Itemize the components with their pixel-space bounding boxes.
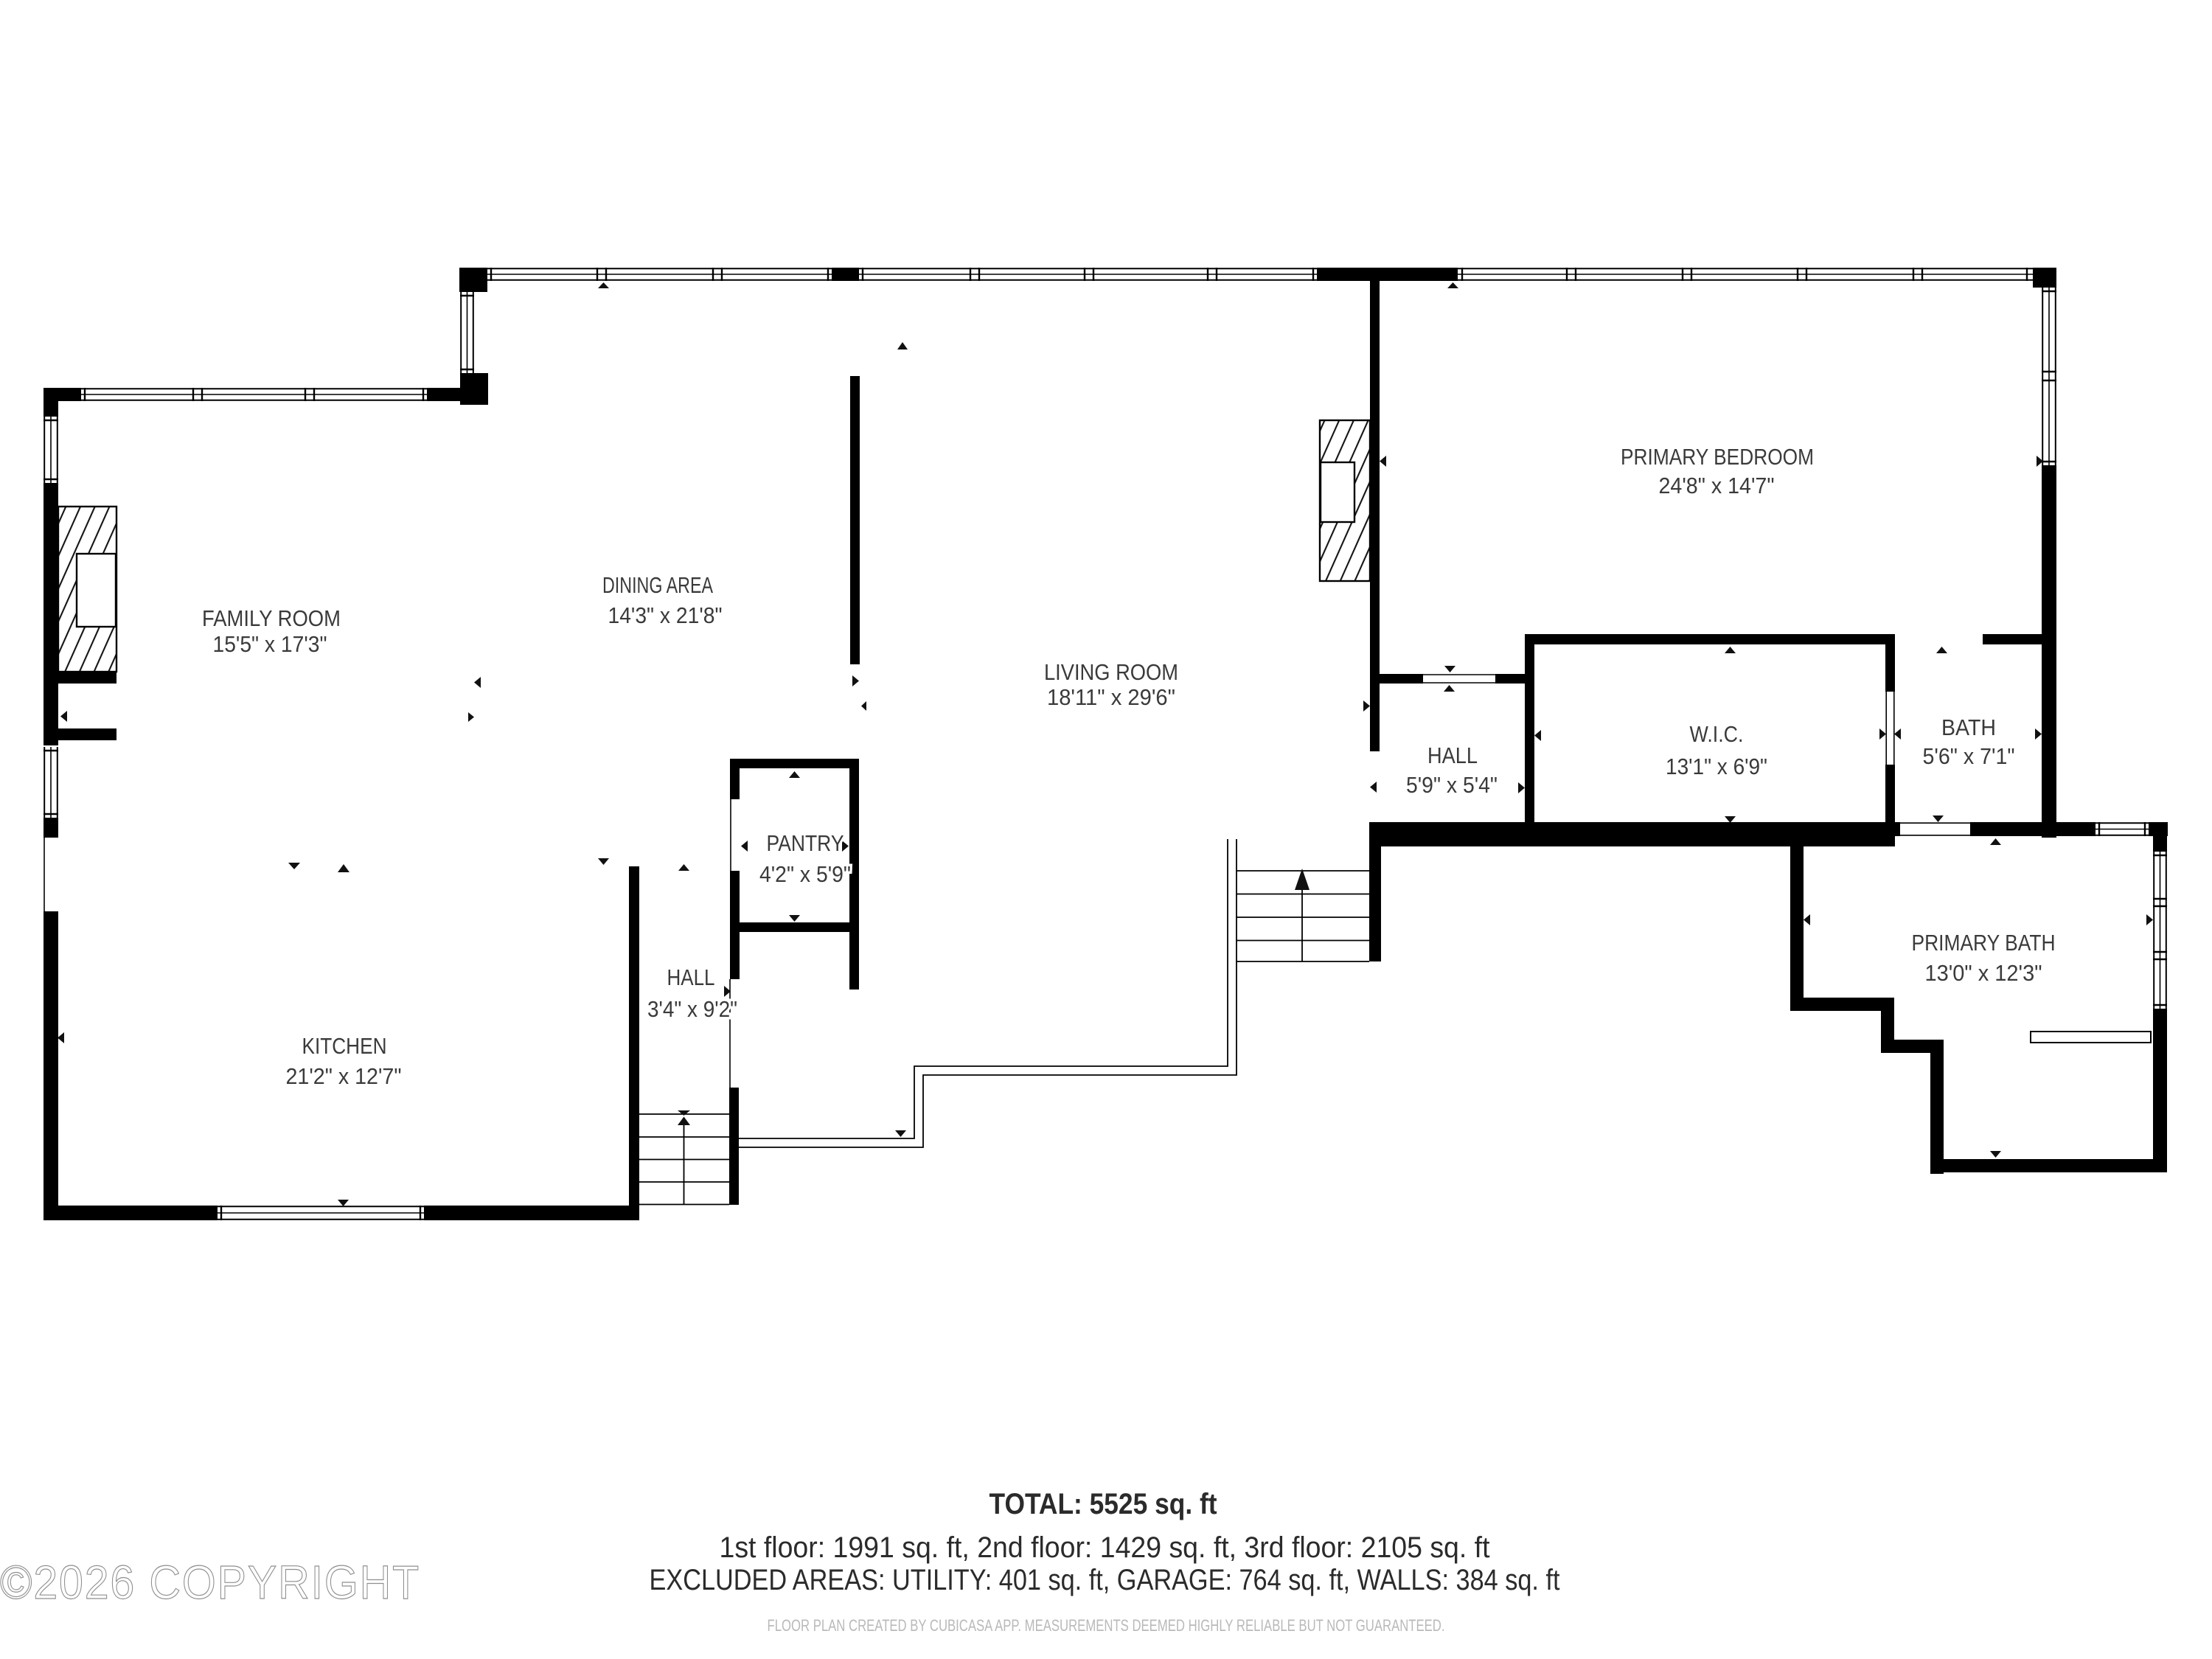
svg-text:1st floor: 1991 sq. ft, 2nd fl: 1st floor: 1991 sq. ft, 2nd floor: 1429 …	[720, 1531, 1490, 1564]
svg-text:18'11" x 29'6": 18'11" x 29'6"	[1047, 684, 1175, 710]
svg-text:BATH: BATH	[1941, 714, 1996, 740]
svg-text:PRIMARY BATH: PRIMARY BATH	[1912, 930, 2056, 956]
svg-text:14'3" x 21'8": 14'3" x 21'8"	[608, 602, 723, 628]
svg-text:15'5" x 17'3": 15'5" x 17'3"	[213, 631, 327, 657]
svg-text:4'2" x 5'9": 4'2" x 5'9"	[759, 861, 851, 887]
svg-text:24'8" x 14'7": 24'8" x 14'7"	[1659, 473, 1775, 498]
svg-text:FLOOR PLAN CREATED BY CUBICASA: FLOOR PLAN CREATED BY CUBICASA APP. MEAS…	[768, 1616, 1445, 1635]
svg-text:©2026 COPYRIGHT: ©2026 COPYRIGHT	[0, 1556, 420, 1609]
svg-text:KITCHEN: KITCHEN	[302, 1033, 387, 1059]
svg-text:5'6" x 7'1": 5'6" x 7'1"	[1923, 743, 2015, 769]
svg-text:13'0" x 12'3": 13'0" x 12'3"	[1925, 960, 2042, 986]
svg-text:HALL: HALL	[1427, 742, 1478, 768]
svg-text:W.I.C.: W.I.C.	[1690, 721, 1744, 747]
svg-text:21'2" x 12'7": 21'2" x 12'7"	[286, 1063, 402, 1089]
svg-text:HALL: HALL	[667, 964, 715, 990]
svg-text:TOTAL: 5525 sq. ft: TOTAL: 5525 sq. ft	[990, 1488, 1217, 1520]
svg-text:5'9" x 5'4": 5'9" x 5'4"	[1406, 772, 1498, 798]
svg-text:13'1" x 6'9": 13'1" x 6'9"	[1666, 754, 1767, 779]
svg-text:FAMILY ROOM: FAMILY ROOM	[202, 605, 341, 631]
svg-text:3'4" x 9'2": 3'4" x 9'2"	[647, 996, 737, 1022]
svg-text:LIVING ROOM: LIVING ROOM	[1044, 659, 1178, 685]
svg-text:DINING AREA: DINING AREA	[602, 572, 713, 598]
svg-text:PANTRY: PANTRY	[767, 830, 844, 856]
svg-text:PRIMARY BEDROOM: PRIMARY BEDROOM	[1621, 444, 1814, 470]
svg-text:EXCLUDED AREAS: UTILITY: 401 s: EXCLUDED AREAS: UTILITY: 401 sq. ft, GAR…	[650, 1564, 1560, 1596]
